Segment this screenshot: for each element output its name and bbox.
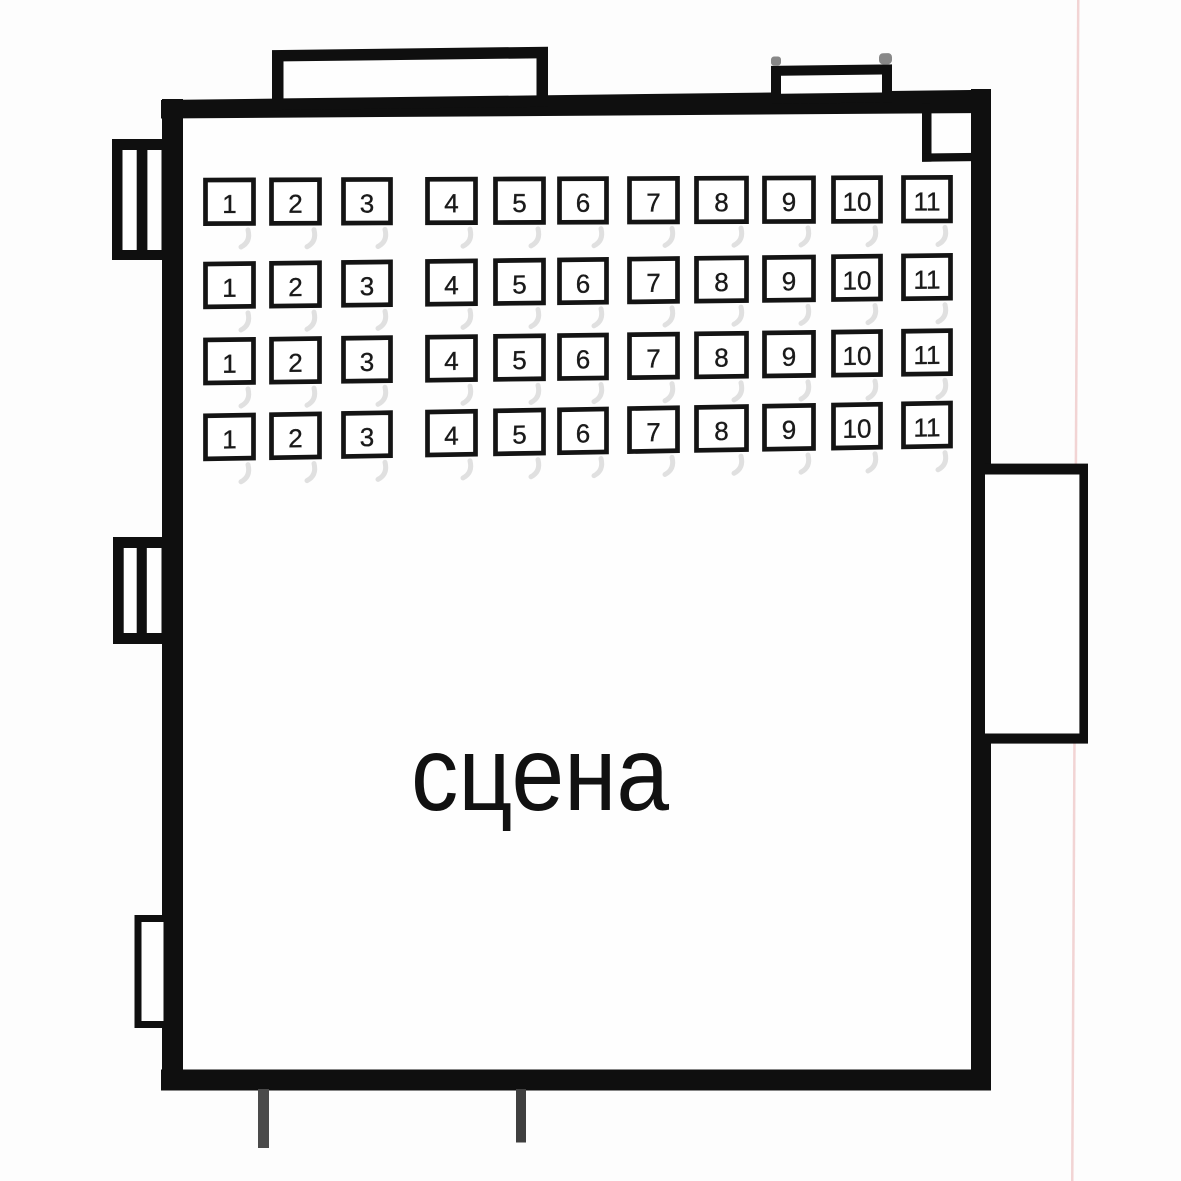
- svg-text:сцена: сцена: [411, 715, 669, 833]
- svg-text:10: 10: [843, 187, 872, 217]
- svg-text:6: 6: [576, 344, 590, 374]
- svg-text:3: 3: [360, 422, 374, 452]
- svg-text:5: 5: [512, 269, 526, 299]
- svg-text:11: 11: [914, 340, 941, 370]
- svg-text:3: 3: [360, 347, 374, 377]
- svg-text:1: 1: [222, 349, 236, 379]
- svg-text:1: 1: [222, 189, 236, 219]
- svg-text:8: 8: [714, 416, 728, 446]
- svg-text:7: 7: [646, 187, 660, 217]
- svg-text:7: 7: [646, 417, 660, 447]
- svg-text:8: 8: [714, 342, 728, 372]
- svg-text:8: 8: [714, 267, 728, 297]
- svg-text:5: 5: [512, 345, 526, 375]
- svg-text:6: 6: [576, 418, 590, 448]
- svg-text:4: 4: [444, 421, 458, 451]
- svg-text:1: 1: [222, 424, 236, 454]
- svg-text:2: 2: [288, 348, 302, 378]
- svg-text:10: 10: [843, 413, 872, 443]
- svg-text:3: 3: [360, 271, 374, 301]
- svg-text:3: 3: [360, 188, 374, 218]
- svg-text:7: 7: [646, 343, 660, 373]
- svg-text:5: 5: [512, 188, 526, 218]
- svg-text:9: 9: [782, 187, 796, 217]
- svg-text:2: 2: [288, 189, 302, 219]
- svg-text:5: 5: [512, 419, 526, 449]
- svg-text:4: 4: [444, 188, 458, 218]
- svg-text:1: 1: [222, 273, 236, 303]
- svg-text:11: 11: [914, 412, 941, 442]
- svg-text:8: 8: [714, 187, 728, 217]
- svg-text:10: 10: [843, 341, 872, 371]
- svg-text:6: 6: [576, 188, 590, 218]
- svg-text:9: 9: [782, 415, 796, 445]
- svg-text:9: 9: [782, 342, 796, 372]
- svg-text:4: 4: [444, 346, 458, 376]
- svg-text:9: 9: [782, 266, 796, 296]
- svg-text:6: 6: [576, 269, 590, 299]
- svg-text:11: 11: [914, 264, 941, 294]
- svg-text:7: 7: [646, 268, 660, 298]
- svg-text:4: 4: [444, 270, 458, 300]
- svg-text:11: 11: [914, 186, 941, 216]
- svg-text:2: 2: [288, 272, 302, 302]
- svg-text:10: 10: [843, 265, 872, 295]
- svg-text:2: 2: [288, 423, 302, 453]
